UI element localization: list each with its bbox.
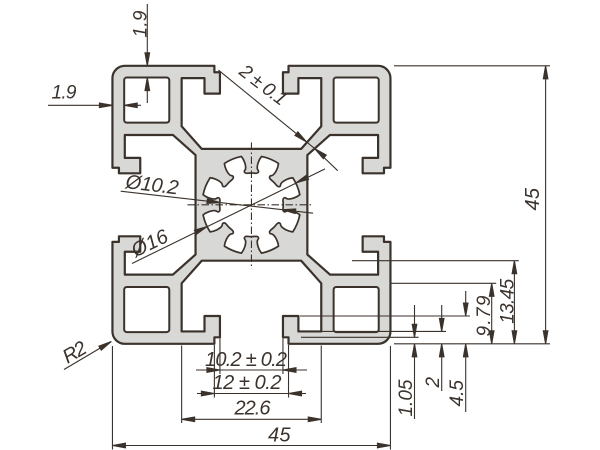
svg-text:Ø16: Ø16 [127, 225, 172, 262]
svg-text:13.45: 13.45 [497, 278, 518, 323]
svg-text:R2: R2 [59, 337, 91, 368]
svg-text:Ø10.2: Ø10.2 [123, 171, 179, 199]
svg-text:22.6: 22.6 [234, 398, 272, 420]
svg-text:12 ± 0.2: 12 ± 0.2 [213, 372, 282, 394]
svg-text:45: 45 [268, 425, 291, 447]
svg-text:1.9: 1.9 [52, 83, 77, 104]
svg-text:45: 45 [522, 187, 544, 210]
svg-text:1.9: 1.9 [131, 10, 152, 37]
svg-text:9.79: 9.79 [474, 295, 495, 336]
svg-text:2: 2 [423, 377, 444, 389]
svg-text:10.2 ± 0.2: 10.2 ± 0.2 [205, 349, 287, 371]
svg-text:1.05: 1.05 [396, 379, 417, 416]
svg-text:4.5: 4.5 [447, 380, 468, 407]
